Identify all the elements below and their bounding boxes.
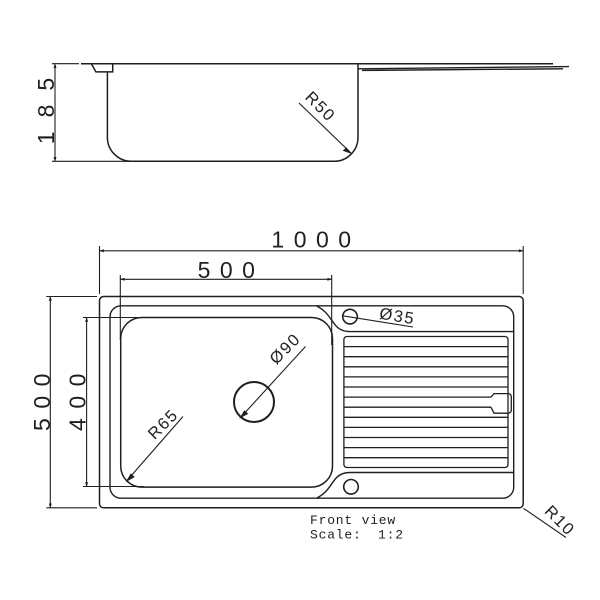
svg-text:500: 500 <box>198 257 265 283</box>
svg-text:1:2: 1:2 <box>378 528 404 543</box>
svg-text:400: 400 <box>65 364 91 431</box>
svg-text:1000: 1000 <box>271 227 360 253</box>
svg-text:Scale:: Scale: <box>310 528 362 543</box>
svg-text:500: 500 <box>29 364 55 431</box>
svg-text:Front view: Front view <box>310 513 396 528</box>
svg-text:185: 185 <box>33 64 59 144</box>
